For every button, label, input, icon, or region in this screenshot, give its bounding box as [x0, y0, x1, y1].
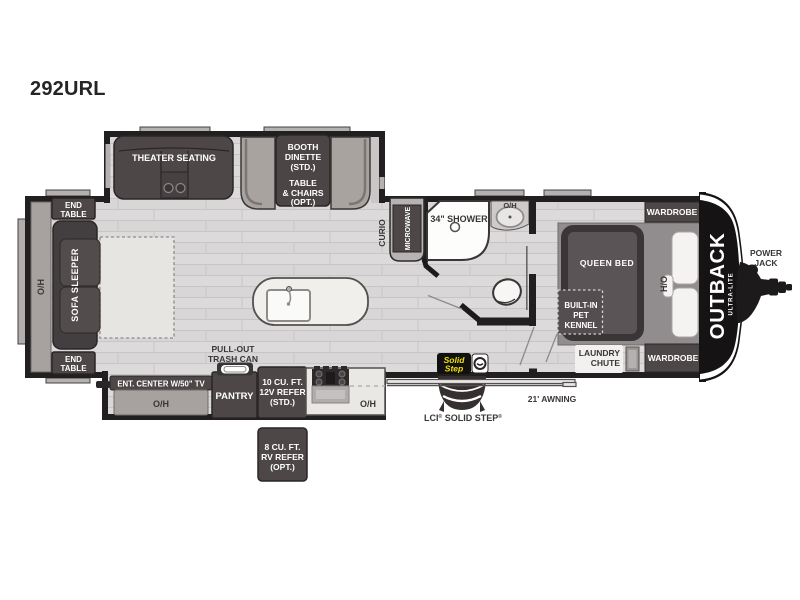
svg-text:BOOTH: BOOTH: [288, 142, 319, 152]
svg-text:TRASH CAN: TRASH CAN: [208, 354, 258, 364]
svg-text:(STD.): (STD.): [270, 397, 295, 407]
svg-text:CHUTE: CHUTE: [591, 358, 621, 368]
svg-text:SOFA SLEEPER: SOFA SLEEPER: [70, 248, 80, 322]
svg-text:12V REFER: 12V REFER: [259, 387, 305, 397]
svg-text:34" SHOWER: 34" SHOWER: [430, 214, 488, 224]
svg-text:BUILT-IN: BUILT-IN: [564, 301, 597, 310]
svg-text:(OPT.): (OPT.): [270, 462, 295, 472]
svg-text:QUEEN BED: QUEEN BED: [580, 258, 634, 268]
svg-text:PULL-OUT: PULL-OUT: [212, 344, 256, 354]
svg-text:WARDROBE: WARDROBE: [648, 353, 699, 363]
svg-text:POWER: POWER: [750, 248, 782, 258]
svg-text:RV REFER: RV REFER: [261, 452, 304, 462]
svg-text:JACK: JACK: [754, 258, 778, 268]
svg-text:8 CU. FT.: 8 CU. FT.: [265, 442, 301, 452]
svg-text:PANTRY: PANTRY: [216, 391, 255, 402]
svg-text:21' AWNING: 21' AWNING: [528, 394, 577, 404]
svg-text:10 CU. FT.: 10 CU. FT.: [262, 377, 303, 387]
svg-text:(STD.): (STD.): [290, 162, 315, 172]
svg-text:LCI® SOLID STEP®: LCI® SOLID STEP®: [424, 413, 502, 423]
svg-text:OUTBACK: OUTBACK: [706, 233, 729, 340]
svg-text:DINETTE: DINETTE: [285, 152, 322, 162]
svg-text:THEATER SEATING: THEATER SEATING: [132, 153, 216, 163]
svg-text:TABLE: TABLE: [60, 210, 87, 219]
svg-text:292URL: 292URL: [30, 78, 106, 100]
svg-text:O/H: O/H: [36, 279, 46, 295]
svg-text:TABLE: TABLE: [289, 178, 317, 188]
svg-text:LAUNDRY: LAUNDRY: [579, 348, 621, 358]
svg-text:(OPT.): (OPT.): [291, 197, 316, 207]
svg-text:Step: Step: [445, 364, 463, 374]
svg-text:O/H: O/H: [503, 201, 516, 210]
svg-text:O/H: O/H: [360, 399, 376, 409]
svg-text:ULTRA-LITE: ULTRA-LITE: [729, 273, 735, 316]
svg-text:KENNEL: KENNEL: [565, 321, 598, 330]
svg-text:END: END: [65, 201, 82, 210]
svg-text:END: END: [65, 355, 82, 364]
svg-text:CURIO: CURIO: [377, 219, 387, 247]
svg-text:H/O: H/O: [659, 276, 669, 292]
svg-text:ENT. CENTER W/50" TV: ENT. CENTER W/50" TV: [117, 380, 205, 389]
svg-text:O/H: O/H: [153, 399, 169, 409]
svg-text:MICROWAVE: MICROWAVE: [405, 206, 412, 250]
svg-text:TABLE: TABLE: [60, 364, 87, 373]
svg-text:PET: PET: [573, 311, 589, 320]
svg-text:WARDROBE: WARDROBE: [647, 207, 698, 217]
